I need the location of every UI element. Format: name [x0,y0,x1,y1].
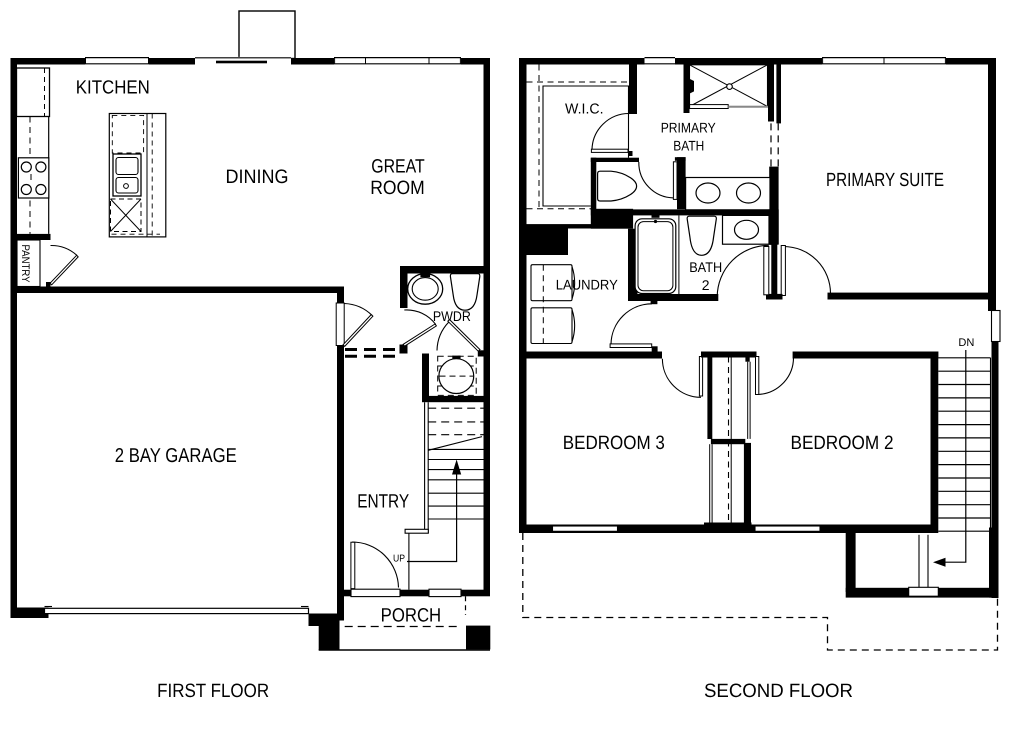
svg-text:ENTRY: ENTRY [357,491,409,512]
svg-text:PRIMARY: PRIMARY [661,119,717,135]
svg-text:GREAT: GREAT [371,156,425,177]
svg-text:W.I.C.: W.I.C. [565,102,604,118]
svg-text:KITCHEN: KITCHEN [76,78,150,99]
svg-text:SECOND FLOOR: SECOND FLOOR [704,681,853,702]
svg-text:DN: DN [958,337,974,349]
svg-text:ROOM: ROOM [370,178,425,199]
svg-text:BATH: BATH [673,137,704,153]
svg-text:BEDROOM 3: BEDROOM 3 [563,433,665,454]
svg-text:2 BAY GARAGE: 2 BAY GARAGE [115,445,237,467]
svg-text:PORCH: PORCH [381,606,442,627]
svg-text:FIRST FLOOR: FIRST FLOOR [157,681,269,702]
svg-text:DINING: DINING [226,166,289,188]
svg-text:BEDROOM 2: BEDROOM 2 [791,433,894,454]
svg-text:BATH: BATH [689,259,722,275]
svg-text:PRIMARY SUITE: PRIMARY SUITE [826,170,944,191]
svg-text:LAUNDRY: LAUNDRY [556,276,619,292]
svg-text:PANTRY: PANTRY [19,245,31,284]
svg-text:2: 2 [702,277,710,293]
svg-text:UP: UP [393,554,405,565]
